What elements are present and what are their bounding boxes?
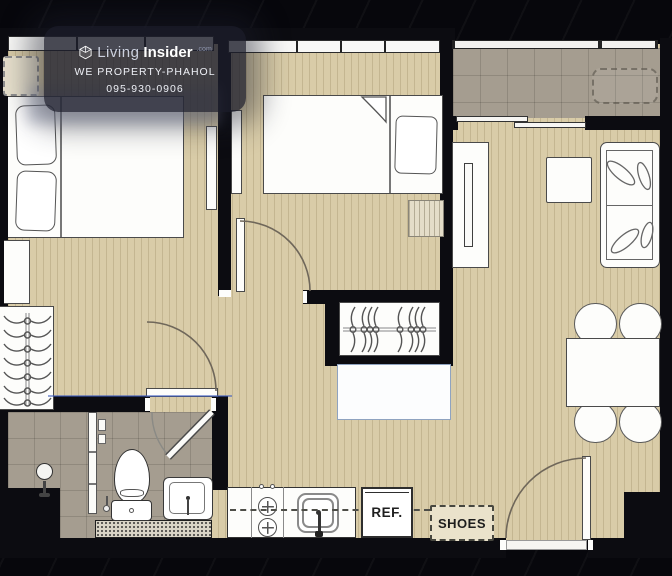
entrance-door-arc	[506, 458, 586, 538]
watermark: LivingInsider.com WE PROPERTY-PHAHOL 095…	[44, 26, 246, 112]
watermark-brand: LivingInsider.com	[78, 44, 212, 61]
bathroom-door-arc	[152, 412, 170, 457]
bathroom-door-leaf	[168, 412, 212, 457]
cube-logo-icon	[78, 45, 93, 60]
bedroom1-door-arc	[147, 322, 216, 391]
watermark-blue-line	[48, 395, 232, 397]
brand-prefix: Living	[97, 44, 139, 61]
bedroom2-door-arc	[240, 221, 310, 291]
watermark-phone: 095-930-0906	[106, 83, 183, 95]
brand-suffix: Insider	[143, 44, 192, 61]
floor-plan-canvas: REF. SHOES	[0, 0, 672, 576]
brand-tld: .com	[197, 46, 212, 53]
watermark-agency: WE PROPERTY-PHAHOL	[74, 66, 215, 78]
